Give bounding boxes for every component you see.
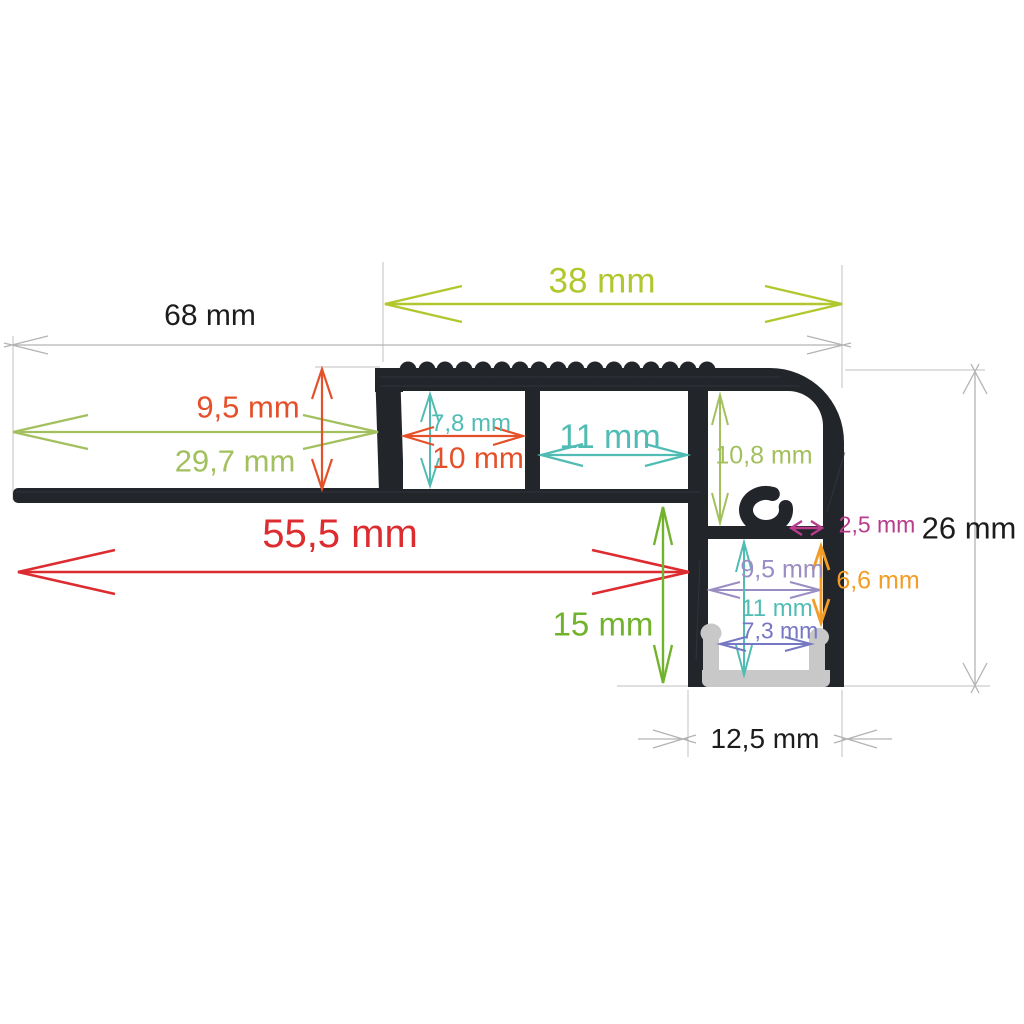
dim-label-68mm: 68 mm: [164, 301, 256, 331]
dim-label-7-8mm: 7,8 mm: [431, 412, 511, 436]
dim-label-11mm-top: 11 mm: [559, 420, 660, 454]
dim-label-10mm: 10 mm: [432, 444, 524, 474]
dim-label-9-5mm-top: 9,5 mm: [196, 392, 299, 423]
dim-arrow-68mm: [4, 336, 851, 354]
dim-arrow-9-5mm-top: [312, 369, 332, 489]
dim-label-12-5mm: 12,5 mm: [711, 725, 820, 753]
dim-label-7-3mm: 7,3 mm: [742, 620, 819, 643]
dim-label-29-7mm: 29,7 mm: [175, 446, 296, 477]
dim-label-55-5mm: 55,5 mm: [262, 514, 418, 554]
dim-label-6-6mm: 6,6 mm: [836, 569, 919, 594]
dim-label-15mm: 15 mm: [553, 608, 654, 641]
dim-label-26mm: 26 mm: [922, 513, 1017, 544]
dim-label-9-5mm-bottom: 9,5 mm: [740, 558, 823, 583]
dim-label-10-8mm: 10,8 mm: [715, 444, 812, 469]
dim-label-38mm: 38 mm: [549, 264, 656, 299]
dim-arrow-55-5mm: [18, 550, 689, 594]
dim-label-2-5mm: 2,5 mm: [839, 514, 916, 537]
technical-drawing: 38 mm 68 mm 9,5 mm 29,7 mm 7,8 mm 10 mm …: [0, 0, 1024, 1024]
tread-ribs: [400, 362, 716, 379]
dim-arrow-15mm: [654, 507, 672, 683]
